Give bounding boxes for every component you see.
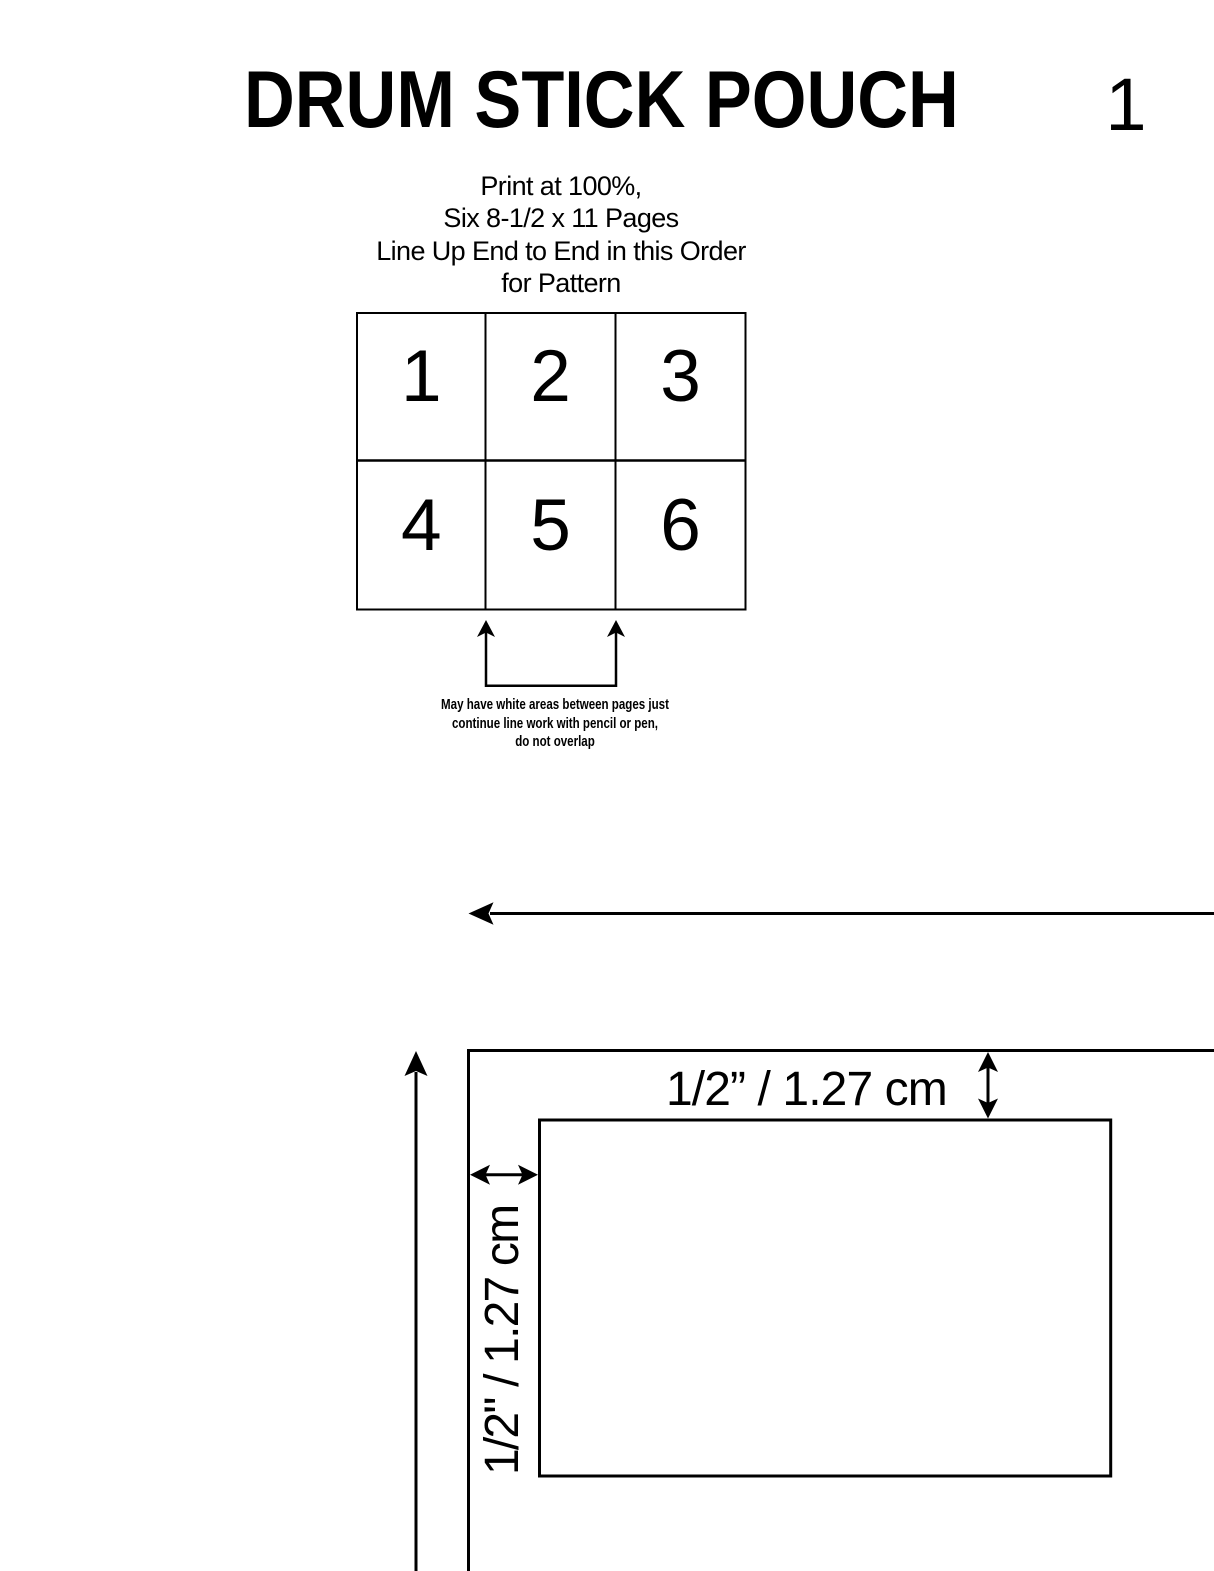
svg-text:5: 5 xyxy=(530,485,571,566)
svg-text:3: 3 xyxy=(660,336,701,417)
svg-text:1: 1 xyxy=(401,336,442,417)
svg-text:6: 6 xyxy=(660,485,701,566)
svg-text:4: 4 xyxy=(401,485,442,566)
svg-text:2: 2 xyxy=(530,336,571,417)
